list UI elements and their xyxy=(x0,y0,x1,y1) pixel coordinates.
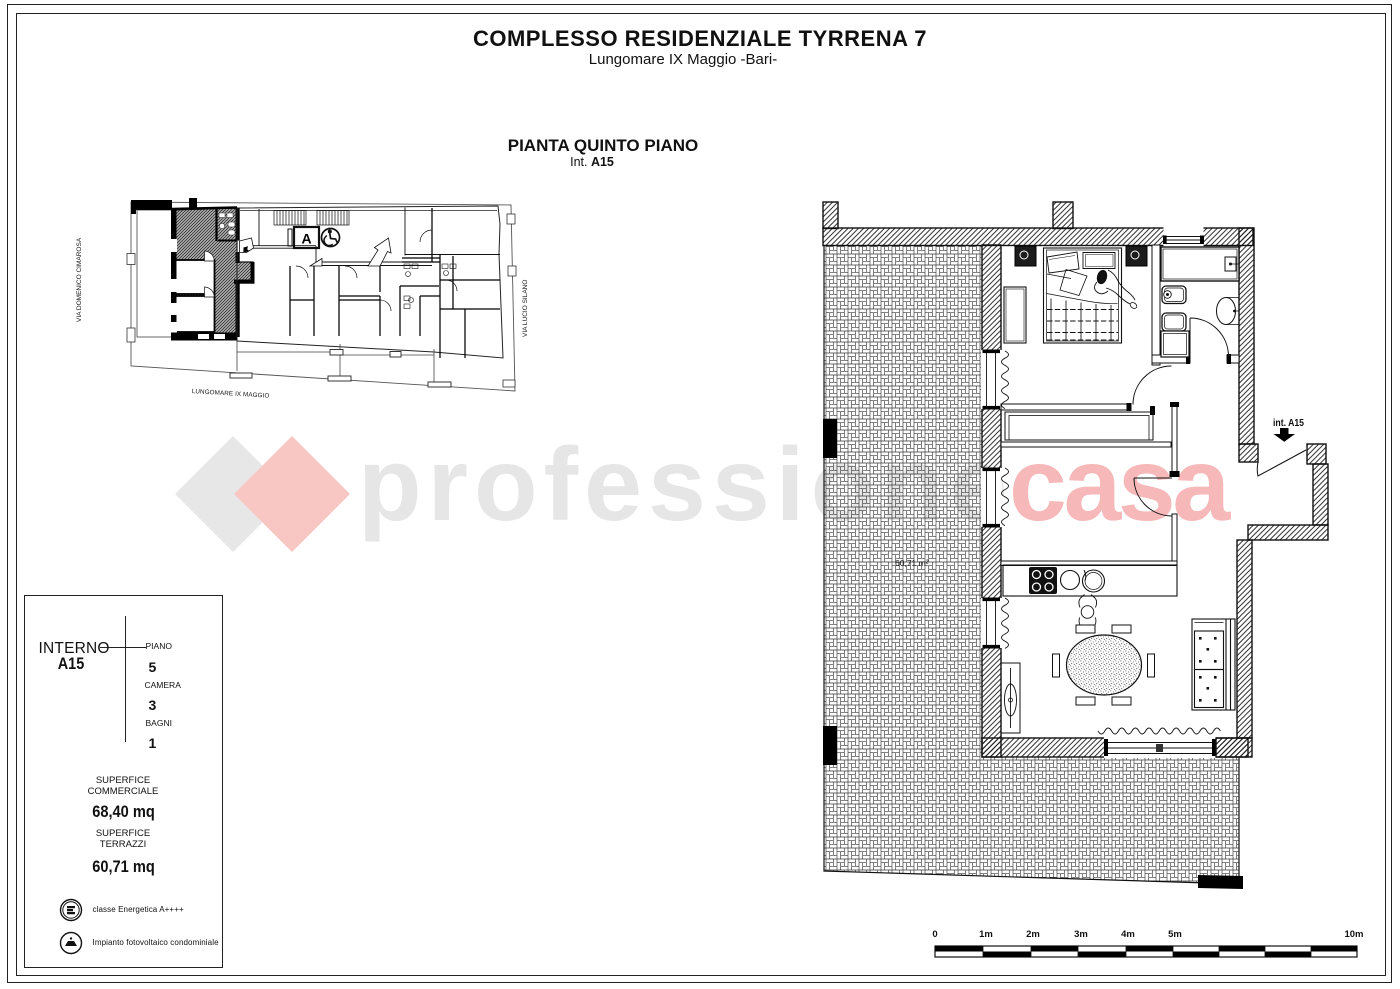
svg-text:10m: 10m xyxy=(1344,929,1363,940)
svg-text:0: 0 xyxy=(932,929,937,940)
svg-text:2m: 2m xyxy=(1026,929,1040,940)
svg-text:3m: 3m xyxy=(1074,929,1088,940)
svg-text:A: A xyxy=(301,231,311,247)
svg-text:4m: 4m xyxy=(1121,929,1135,940)
svg-text:int. A15: int. A15 xyxy=(1273,418,1304,429)
svg-text:5m: 5m xyxy=(1168,929,1182,940)
svg-text:60,71 m²: 60,71 m² xyxy=(895,558,929,568)
svg-text:1m: 1m xyxy=(979,929,993,940)
